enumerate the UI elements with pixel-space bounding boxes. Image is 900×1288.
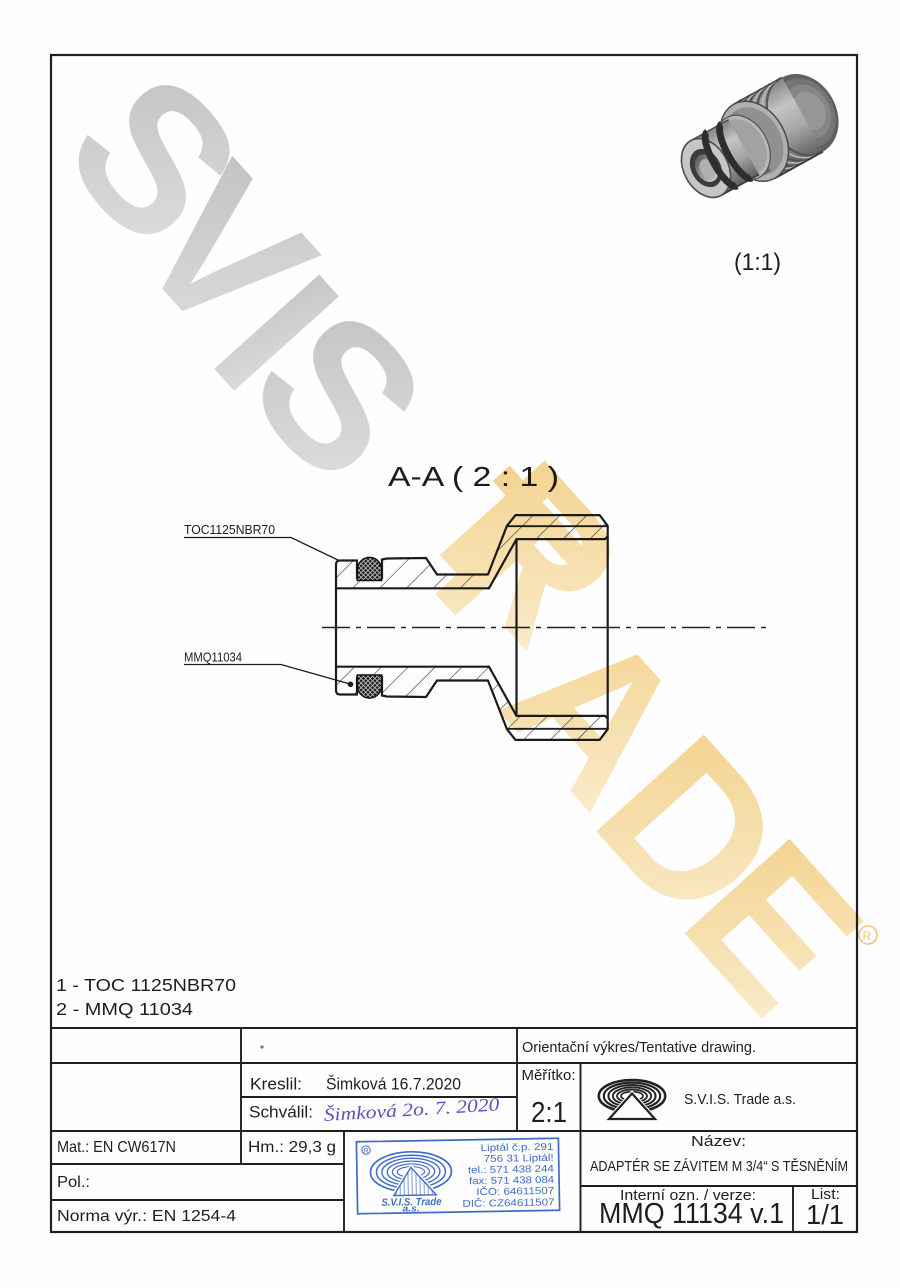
svg-text:R: R [863,929,872,943]
